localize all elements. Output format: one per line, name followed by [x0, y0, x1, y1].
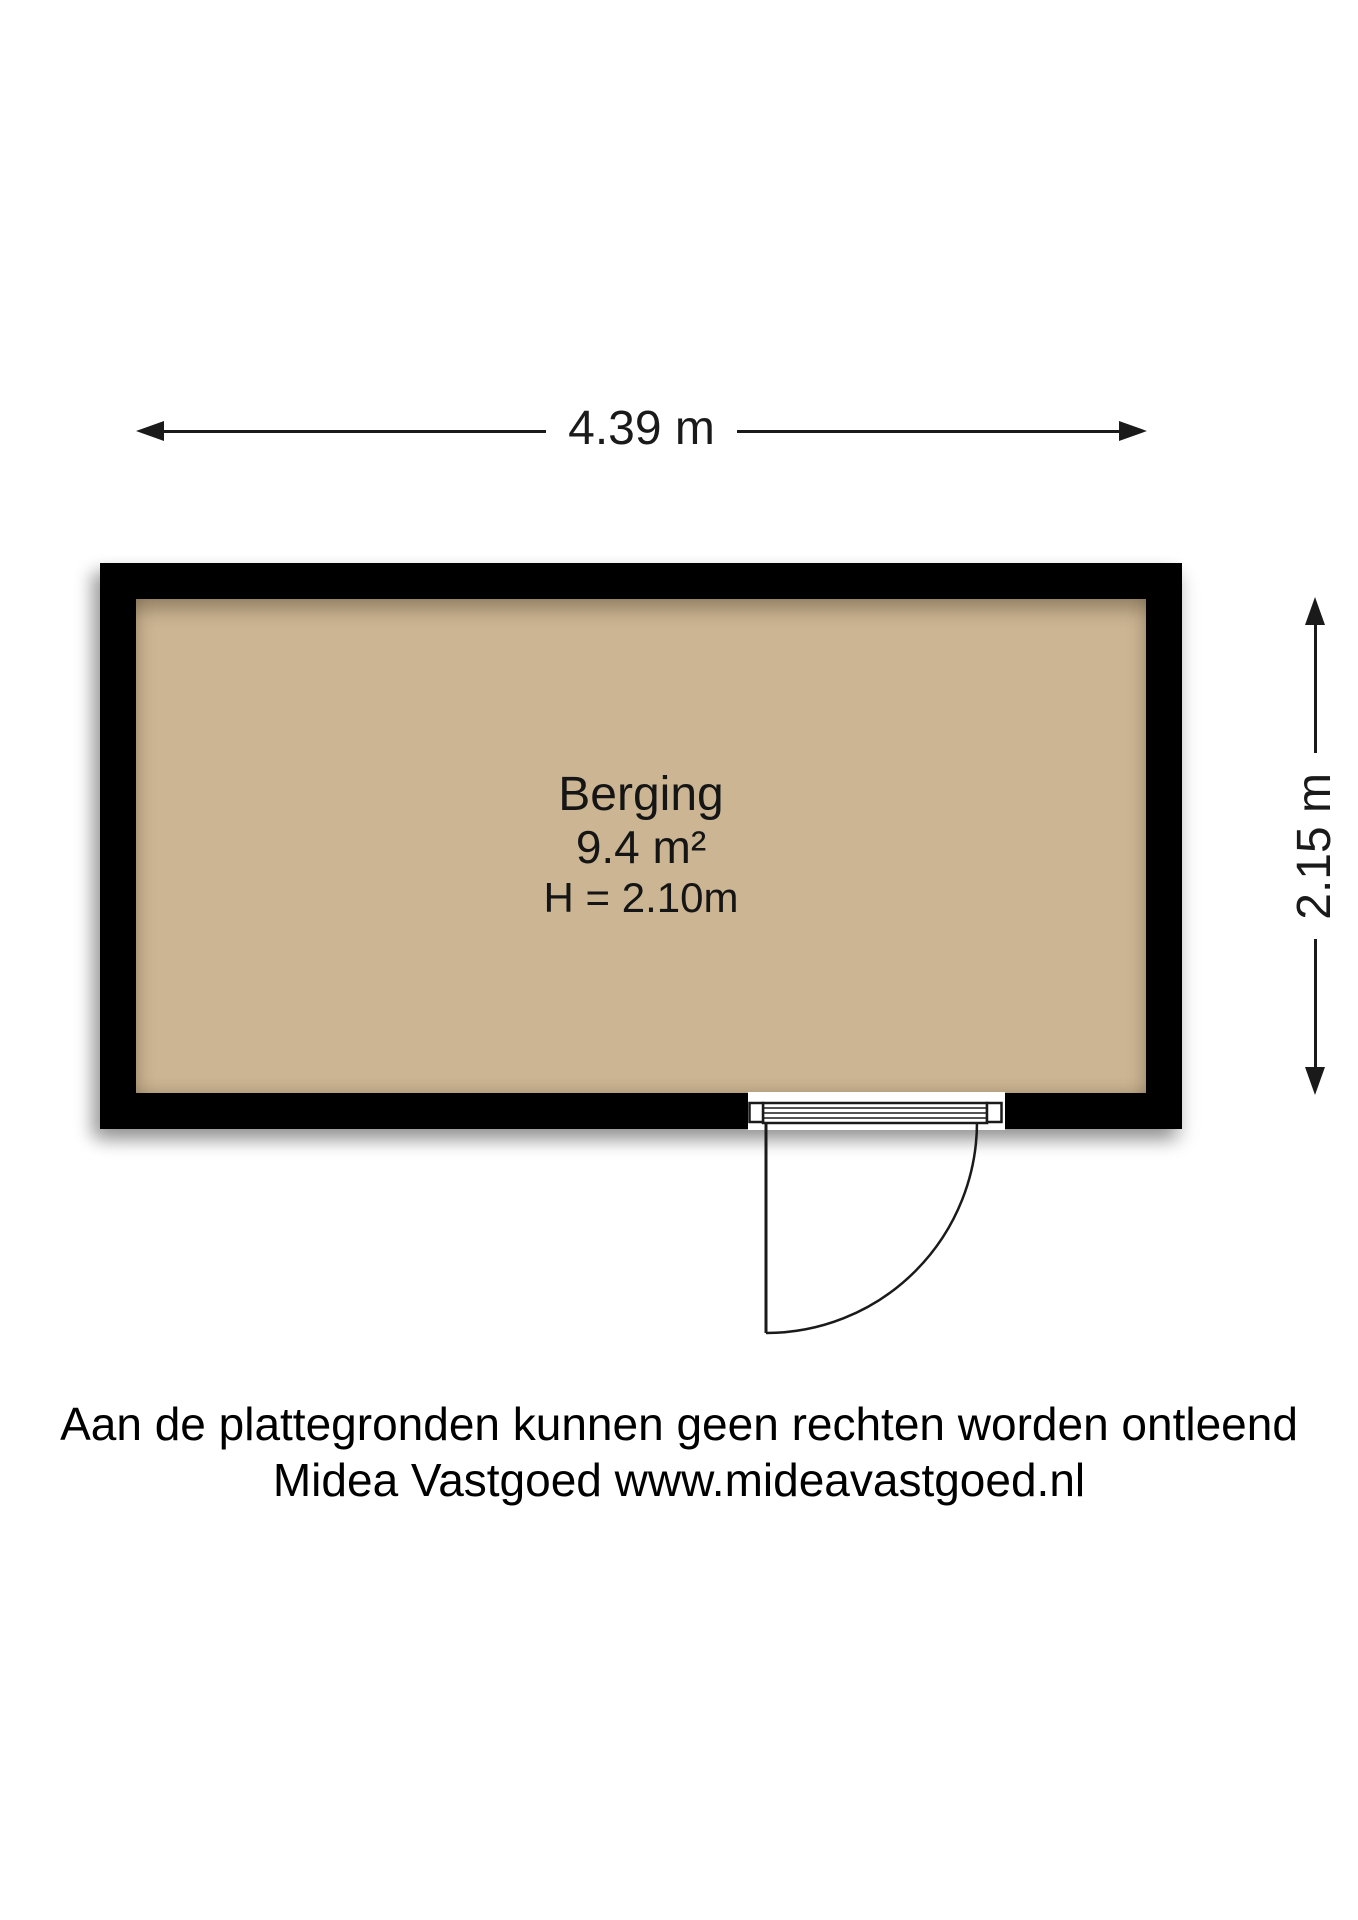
- floorplan-canvas: 4.39 m 2.15 m Berging 9.4 m² H = 2.10m: [0, 0, 1358, 1920]
- door-jamb-right: [987, 1103, 1002, 1122]
- arrow-up-icon: [1305, 597, 1325, 625]
- width-dimension: 4.39 m: [136, 406, 1147, 456]
- room-name-label: Berging: [558, 769, 723, 821]
- dimension-line: [1314, 625, 1317, 753]
- room-ceiling-height-label: H = 2.10m: [544, 873, 739, 923]
- height-dimension-label: 2.15 m: [1291, 753, 1339, 940]
- footer-disclaimer: Aan de plattegronden kunnen geen rechten…: [0, 1396, 1358, 1452]
- door-symbol: [640, 1085, 1010, 1345]
- width-dimension-label: 4.39 m: [546, 405, 737, 453]
- door-jamb-left: [750, 1103, 764, 1122]
- dimension-line: [1314, 939, 1317, 1067]
- arrow-right-icon: [1119, 421, 1147, 441]
- footer: Aan de plattegronden kunnen geen rechten…: [0, 1396, 1358, 1508]
- dimension-line: [737, 430, 1119, 433]
- room-berging: Berging 9.4 m² H = 2.10m: [100, 563, 1182, 1129]
- footer-company: Midea Vastgoed www.mideavastgoed.nl: [0, 1452, 1358, 1508]
- height-dimension: 2.15 m: [1291, 597, 1339, 1095]
- door-swing-arc: [766, 1122, 977, 1333]
- dimension-line: [164, 430, 546, 433]
- room-floor: Berging 9.4 m² H = 2.10m: [136, 599, 1146, 1093]
- arrow-down-icon: [1305, 1067, 1325, 1095]
- arrow-left-icon: [136, 421, 164, 441]
- room-area-label: 9.4 m²: [576, 821, 706, 873]
